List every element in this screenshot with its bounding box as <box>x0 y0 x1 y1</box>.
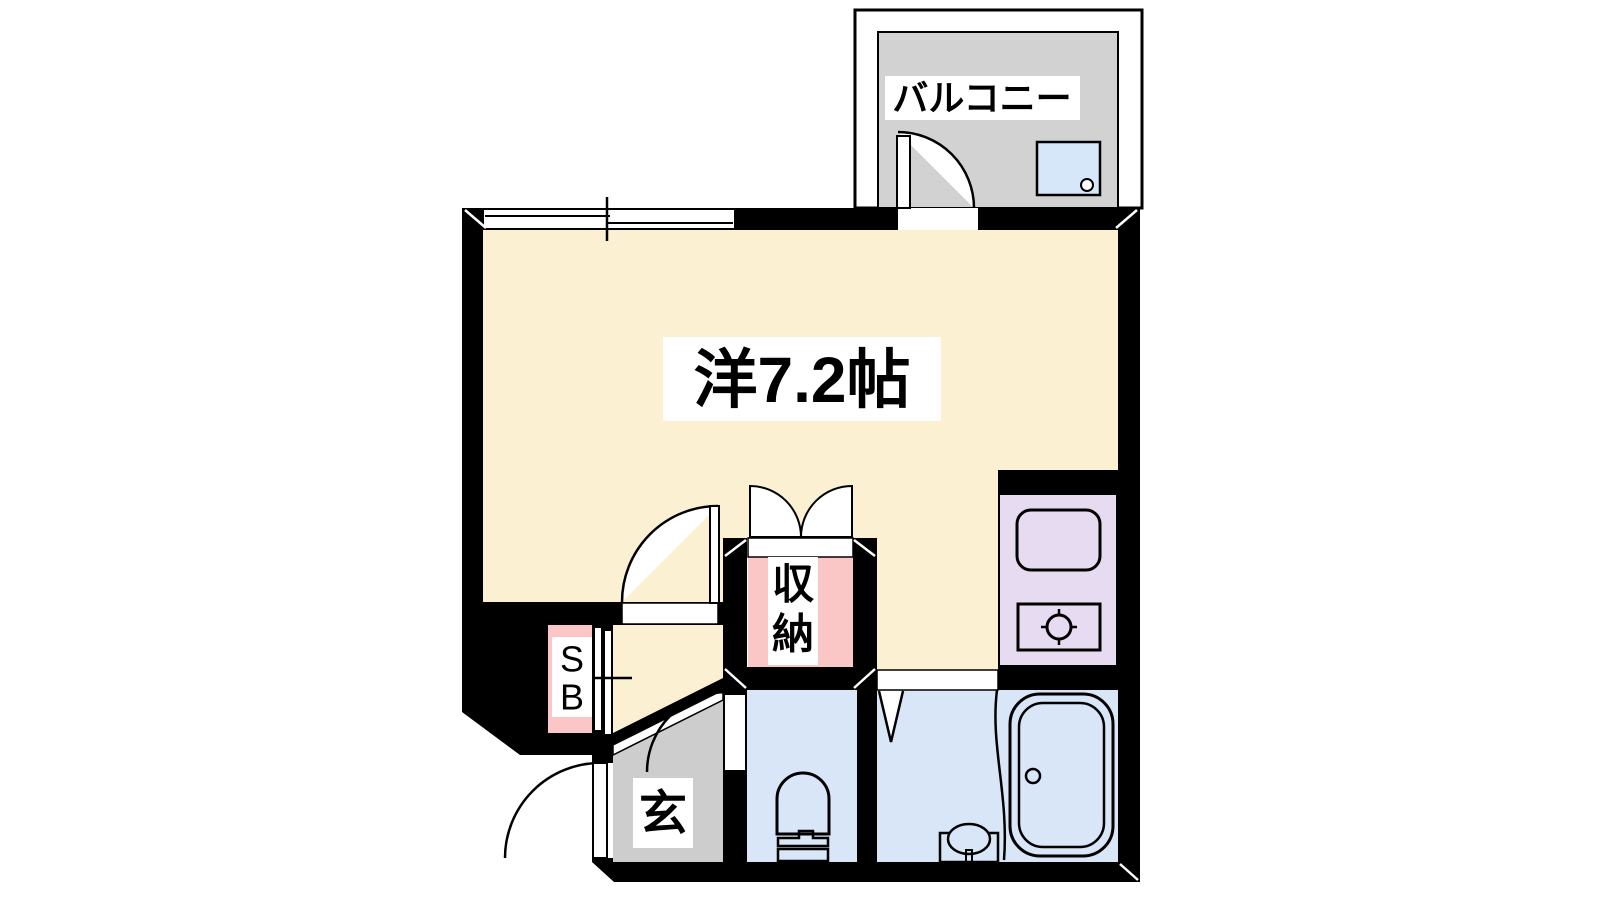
floorplan-image: バルコニー 洋7.2帖 収 納 S B 玄 <box>0 0 1600 900</box>
svg-text:バルコニー: バルコニー <box>892 78 1071 119</box>
storage-label: 収 納 <box>768 557 818 665</box>
main-room-label: 洋7.2帖 <box>663 337 941 421</box>
wall-toilet-bath-divider <box>857 690 877 862</box>
svg-text:納: 納 <box>772 611 814 658</box>
wall-kitchen-south <box>998 667 1118 690</box>
floorplan-svg: バルコニー 洋7.2帖 収 納 S B 玄 <box>0 0 1600 900</box>
entrance-label: 玄 <box>633 778 693 848</box>
svg-text:洋7.2帖: 洋7.2帖 <box>694 344 911 416</box>
svg-text:B: B <box>560 677 584 718</box>
shoebox-label: S B <box>552 637 592 718</box>
wall-kitchen-north <box>998 470 1118 493</box>
hallway-east-strip <box>877 470 998 670</box>
svg-text:玄: 玄 <box>639 788 687 841</box>
front-door-icon <box>505 763 613 858</box>
washer-drain-icon <box>1081 179 1093 191</box>
balcony-label: バルコニー <box>885 76 1080 120</box>
wall-right <box>1118 208 1140 882</box>
toilet-room-floor <box>747 690 857 862</box>
wall-left <box>462 208 483 625</box>
svg-text:S: S <box>560 639 584 680</box>
wall-bottom <box>592 862 1140 882</box>
svg-text:収: 収 <box>772 561 814 608</box>
